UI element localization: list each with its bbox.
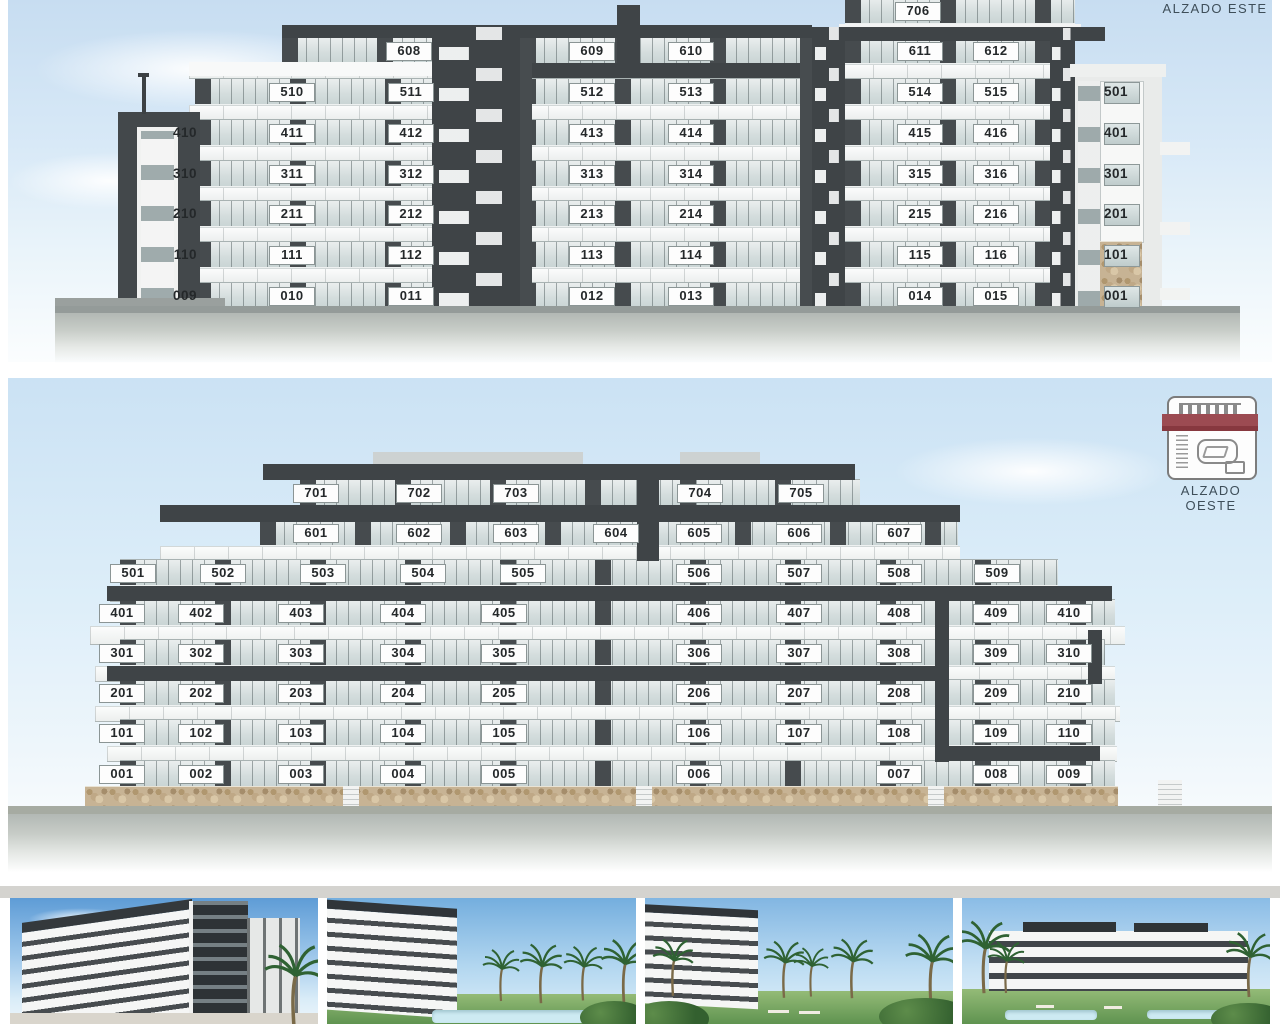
- facade-window-band: [845, 78, 1075, 106]
- facade-window-band: [300, 479, 860, 507]
- balcony-slab: [514, 268, 818, 283]
- unit-number-208: 208: [876, 684, 922, 703]
- facade-window-band: [120, 719, 1115, 747]
- dark-fascia: [107, 666, 940, 681]
- unit-number-609: 609: [569, 42, 615, 61]
- photo-building-roof: [1023, 922, 1115, 932]
- unit-number-607: 607: [876, 524, 922, 543]
- unit-number-512: 512: [569, 83, 615, 102]
- roof-parapet: [263, 464, 855, 480]
- palm-tree-icon: [651, 929, 695, 1001]
- facade-window-band: [845, 241, 1075, 269]
- unit-number-507: 507: [776, 564, 822, 583]
- unit-number-612: 612: [973, 42, 1019, 61]
- unit-number-412: 412: [388, 124, 434, 143]
- balcony-slab: [839, 227, 1081, 242]
- unit-number-116: 116: [973, 246, 1019, 265]
- unit-number-103: 103: [278, 724, 324, 743]
- roof-parapet: [520, 25, 812, 38]
- east-elevation-drawing: 6085105114114123113122112121111120100116…: [0, 0, 1280, 380]
- ground: [55, 313, 1240, 363]
- unit-number-306: 306: [676, 644, 722, 663]
- stair-core: [812, 27, 845, 306]
- balcony-slab: [189, 227, 468, 242]
- facade-window-band: [520, 160, 812, 188]
- unit-number-602: 602: [396, 524, 442, 543]
- unit-number-304: 304: [380, 644, 426, 663]
- photo-lounger: [768, 1010, 790, 1013]
- unit-number-008: 008: [973, 765, 1019, 784]
- palm-tree-icon: [1224, 918, 1270, 1006]
- unit-number-505: 505: [500, 564, 546, 583]
- west-elevation-drawing: 7017027037047056016026036046056066075015…: [0, 378, 1280, 888]
- balcony-slab: [189, 105, 468, 120]
- photo-lounger: [1104, 1006, 1122, 1009]
- siteplan-crenellation: [1179, 403, 1241, 414]
- unit-number-411: 411: [269, 124, 315, 143]
- unit-number-206: 206: [676, 684, 722, 703]
- balcony-slab: [189, 268, 468, 283]
- unit-number-002: 002: [178, 765, 224, 784]
- facade-window-band: [845, 37, 1075, 65]
- balcony-slab: [189, 146, 468, 161]
- site-plan-icon: [1167, 396, 1257, 480]
- unit-number-501: 501: [110, 564, 156, 583]
- unit-number-509: 509: [974, 564, 1020, 583]
- east-elevation-title: ALZADO ESTE: [1160, 1, 1270, 16]
- facade-window-band: [120, 679, 1115, 707]
- render-photo-1: [10, 898, 318, 1024]
- unit-number-605: 605: [676, 524, 722, 543]
- siteplan-small-building: [1225, 461, 1245, 474]
- unit-number-506: 506: [676, 564, 722, 583]
- unit-number-109: 109: [973, 724, 1019, 743]
- unit-number-513: 513: [668, 83, 714, 102]
- presentation-sheet: 6085105114114123113122112121111120100116…: [0, 0, 1280, 1024]
- unit-number-701: 701: [293, 484, 339, 503]
- palm-tree-icon: [262, 934, 318, 1024]
- section-edge: [800, 38, 812, 306]
- unit-number-207: 207: [776, 684, 822, 703]
- unit-number-313: 313: [569, 165, 615, 184]
- facade-window-band: [520, 78, 812, 106]
- palm-tree-icon: [518, 933, 564, 1009]
- balcony-slab: [514, 146, 818, 161]
- unit-number-514: 514: [897, 83, 943, 102]
- side-balcony: [1160, 288, 1190, 300]
- balcony-slab: [839, 64, 1081, 79]
- unit-number-504: 504: [400, 564, 446, 583]
- unit-number-107: 107: [776, 724, 822, 743]
- unit-number-310: 310: [145, 165, 197, 182]
- unit-number-006: 006: [676, 765, 722, 784]
- unit-number-610: 610: [668, 42, 714, 61]
- unit-number-104: 104: [380, 724, 426, 743]
- unit-number-307: 307: [776, 644, 822, 663]
- render-photos-strip: [10, 898, 1270, 1024]
- unit-number-102: 102: [178, 724, 224, 743]
- photo-building-facade: [327, 900, 456, 1019]
- palm-tree-icon: [562, 936, 604, 1006]
- unit-number-603: 603: [493, 524, 539, 543]
- unit-number-501: 501: [1090, 83, 1142, 100]
- unit-number-205: 205: [481, 684, 527, 703]
- ground-line: [55, 306, 1240, 313]
- unit-number-408: 408: [876, 604, 922, 623]
- unit-number-404: 404: [380, 604, 426, 623]
- side-balcony: [1160, 142, 1190, 155]
- unit-number-414: 414: [668, 124, 714, 143]
- unit-number-108: 108: [876, 724, 922, 743]
- balcony-slab: [514, 227, 818, 242]
- unit-number-009: 009: [145, 287, 197, 304]
- unit-number-415: 415: [897, 124, 943, 143]
- facade-window-band: [845, 119, 1075, 147]
- unit-number-012: 012: [569, 287, 615, 306]
- unit-number-405: 405: [481, 604, 527, 623]
- render-photo-2: [327, 898, 635, 1024]
- unit-number-113: 113: [569, 246, 615, 265]
- balcony-slab: [839, 268, 1081, 283]
- unit-number-416: 416: [973, 124, 1019, 143]
- unit-number-402: 402: [178, 604, 224, 623]
- unit-number-212: 212: [388, 205, 434, 224]
- balcony-slab: [839, 105, 1081, 120]
- unit-number-010: 010: [269, 287, 315, 306]
- unit-number-601: 601: [293, 524, 339, 543]
- unit-number-410: 410: [1046, 604, 1092, 623]
- photo-lounger: [1036, 1005, 1054, 1008]
- palm-tree-icon: [829, 926, 875, 1006]
- tower-roof-slab: [1070, 64, 1166, 77]
- facade-window-band: [520, 200, 812, 228]
- unit-number-015: 015: [973, 287, 1019, 306]
- unit-number-216: 216: [973, 205, 1019, 224]
- facade-window-band: [520, 119, 812, 147]
- roof-slab: [189, 62, 468, 76]
- unit-number-005: 005: [481, 765, 527, 784]
- ground: [8, 814, 1272, 872]
- unit-number-115: 115: [897, 246, 943, 265]
- unit-number-706: 706: [895, 2, 941, 21]
- unit-number-101: 101: [99, 724, 145, 743]
- facade-window-band: [845, 0, 1075, 25]
- unit-number-611: 611: [897, 42, 943, 61]
- unit-number-314: 314: [668, 165, 714, 184]
- siteplan-hatch: [1176, 435, 1188, 468]
- unit-number-315: 315: [897, 165, 943, 184]
- facade-window-band: [845, 200, 1075, 228]
- balcony-slab: [514, 187, 818, 202]
- unit-number-303: 303: [278, 644, 324, 663]
- facade-window-band: [120, 760, 1115, 788]
- side-balcony: [1160, 222, 1190, 235]
- stair-core: [432, 25, 520, 306]
- facade-window-band: [120, 599, 1115, 627]
- antenna-top: [138, 73, 149, 77]
- facade-window-band: [520, 37, 812, 65]
- center-mullion: [617, 5, 640, 78]
- unit-number-604: 604: [593, 524, 639, 543]
- unit-number-401: 401: [99, 604, 145, 623]
- unit-number-003: 003: [278, 765, 324, 784]
- tower-windows: [1078, 81, 1100, 306]
- unit-number-508: 508: [876, 564, 922, 583]
- siteplan-highlight-band: [1162, 414, 1258, 431]
- center-mullion: [637, 479, 659, 561]
- unit-number-204: 204: [380, 684, 426, 703]
- unit-number-312: 312: [388, 165, 434, 184]
- unit-number-310: 310: [1046, 644, 1092, 663]
- photo-pool: [1005, 1010, 1097, 1020]
- unit-number-007: 007: [876, 765, 922, 784]
- unit-number-703: 703: [493, 484, 539, 503]
- palm-tree-icon: [792, 939, 830, 1001]
- balcony-slab: [839, 187, 1081, 202]
- unit-number-702: 702: [396, 484, 442, 503]
- unit-number-111: 111: [269, 246, 315, 265]
- unit-number-316: 316: [973, 165, 1019, 184]
- roof-fascia: [160, 505, 960, 522]
- facade-window-band: [845, 160, 1075, 188]
- unit-number-211: 211: [269, 205, 315, 224]
- unit-number-406: 406: [676, 604, 722, 623]
- unit-number-311: 311: [269, 165, 315, 184]
- unit-number-001: 001: [1090, 287, 1142, 304]
- unit-number-106: 106: [676, 724, 722, 743]
- unit-number-013: 013: [668, 287, 714, 306]
- dark-fascia: [945, 746, 1100, 761]
- render-photo-3: [645, 898, 953, 1024]
- unit-number-009: 009: [1046, 765, 1092, 784]
- unit-number-114: 114: [668, 246, 714, 265]
- unit-number-105: 105: [481, 724, 527, 743]
- unit-number-210: 210: [145, 205, 197, 222]
- unit-number-209: 209: [973, 684, 1019, 703]
- unit-number-413: 413: [569, 124, 615, 143]
- unit-number-403: 403: [278, 604, 324, 623]
- unit-number-201: 201: [1090, 205, 1142, 222]
- unit-number-309: 309: [973, 644, 1019, 663]
- unit-number-210: 210: [1046, 684, 1092, 703]
- unit-number-704: 704: [677, 484, 723, 503]
- unit-number-201: 201: [99, 684, 145, 703]
- unit-number-502: 502: [200, 564, 246, 583]
- recess-band: [935, 592, 949, 762]
- photo-pool: [1147, 1010, 1221, 1019]
- palm-tree-icon: [986, 931, 1026, 999]
- unit-number-608: 608: [386, 42, 432, 61]
- antenna: [142, 76, 146, 114]
- unit-number-510: 510: [269, 83, 315, 102]
- siteplan-pool-inner: [1202, 446, 1229, 458]
- unit-number-511: 511: [388, 83, 434, 102]
- balcony-slab: [189, 187, 468, 202]
- unit-number-215: 215: [897, 205, 943, 224]
- unit-number-401: 401: [1090, 124, 1142, 141]
- unit-number-014: 014: [897, 287, 943, 306]
- render-photo-4: [962, 898, 1270, 1024]
- unit-number-410: 410: [145, 124, 197, 141]
- palm-tree-icon: [481, 940, 521, 1006]
- unit-number-301: 301: [99, 644, 145, 663]
- unit-number-110: 110: [1046, 724, 1092, 743]
- unit-number-308: 308: [876, 644, 922, 663]
- photo-lounger: [799, 1011, 821, 1014]
- photo-building-tower: [189, 901, 248, 1024]
- unit-number-110: 110: [145, 246, 197, 263]
- unit-number-407: 407: [776, 604, 822, 623]
- unit-number-301: 301: [1090, 165, 1142, 182]
- photo-building-facade: [989, 931, 1248, 991]
- photo-strip-separator: [0, 886, 1280, 898]
- west-elevation-title: ALZADO OESTE: [1155, 483, 1267, 513]
- section-edge: [520, 38, 532, 306]
- unit-number-302: 302: [178, 644, 224, 663]
- dark-fascia: [107, 586, 1112, 601]
- palm-tree-icon: [599, 927, 636, 1011]
- facade-window-band: [520, 241, 812, 269]
- unit-number-202: 202: [178, 684, 224, 703]
- unit-number-001: 001: [99, 765, 145, 784]
- balcony-slab: [839, 146, 1081, 161]
- balcony-slab: [514, 105, 818, 120]
- unit-number-515: 515: [973, 83, 1019, 102]
- unit-number-606: 606: [776, 524, 822, 543]
- unit-number-305: 305: [481, 644, 527, 663]
- dark-fascia: [520, 63, 812, 78]
- unit-number-011: 011: [388, 287, 434, 306]
- unit-number-101: 101: [1090, 246, 1142, 263]
- unit-number-004: 004: [380, 765, 426, 784]
- unit-number-203: 203: [278, 684, 324, 703]
- unit-number-705: 705: [778, 484, 824, 503]
- unit-number-503: 503: [300, 564, 346, 583]
- unit-number-409: 409: [973, 604, 1019, 623]
- unit-number-112: 112: [388, 246, 434, 265]
- photo-building-roof: [1134, 923, 1208, 932]
- unit-number-214: 214: [668, 205, 714, 224]
- unit-number-213: 213: [569, 205, 615, 224]
- facade-window-band: [120, 639, 1105, 667]
